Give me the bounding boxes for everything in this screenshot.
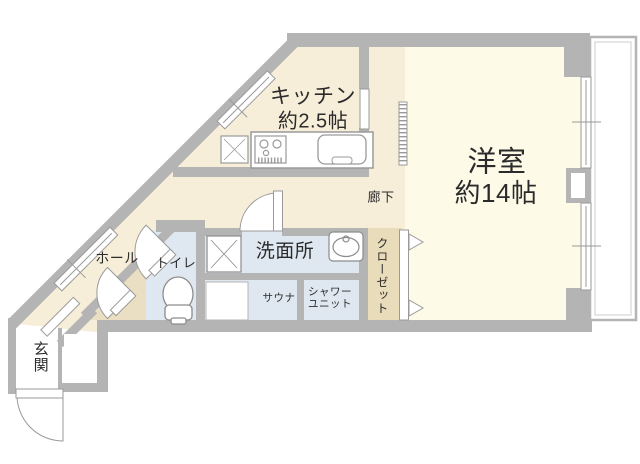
label-western-room-size: 約14帖 — [455, 179, 538, 209]
balcony — [590, 37, 636, 320]
label-kitchen-size: 約2.5帖 — [278, 111, 348, 134]
wall-kitchen-right-upper — [359, 45, 369, 89]
wall-entrance-left — [8, 318, 16, 394]
accordion-door-icon — [399, 102, 407, 165]
floorplan: キッチン 約2.5帖 洋室 約14帖 廊下 洗面所 サウナ シャワー ユニット … — [0, 0, 640, 464]
front-door-icon — [16, 389, 63, 441]
service-space — [206, 282, 248, 320]
stove-icon — [255, 136, 286, 163]
basin-icon — [329, 232, 363, 261]
toilet-icon — [163, 277, 193, 324]
wall-right-bottom — [566, 288, 590, 322]
label-toilet: トイレ — [156, 257, 197, 272]
label-corridor: 廊下 — [367, 191, 394, 206]
floorplan-drawing — [0, 0, 640, 464]
wall-right-top — [564, 40, 590, 77]
sink-icon — [318, 135, 366, 164]
wall-void-bottom — [58, 383, 108, 392]
wall-void-right — [97, 320, 108, 392]
label-hall: ホール — [95, 250, 139, 266]
label-shower-line1: シャワー — [308, 286, 352, 298]
wall-washroom-bottom — [201, 273, 368, 280]
label-western-room: 洋室 — [467, 146, 526, 179]
kitchen-fixtures — [221, 132, 373, 168]
wall-entrance-right — [58, 328, 62, 386]
label-entrance: 玄関 — [31, 341, 48, 373]
label-shower-line2: ユニット — [308, 298, 352, 310]
label-washroom: 洗面所 — [256, 241, 315, 263]
label-closet: クローゼット — [374, 237, 388, 315]
wall-top — [287, 33, 590, 47]
refrigerator-space-icon — [221, 136, 248, 163]
wall-sauna-shower — [297, 280, 304, 320]
label-kitchen: キッチン — [270, 85, 356, 109]
washing-machine-space-icon — [207, 236, 241, 272]
kitchen-opening — [360, 89, 369, 129]
pipe-space — [64, 334, 97, 383]
label-sauna: サウナ — [263, 292, 296, 304]
